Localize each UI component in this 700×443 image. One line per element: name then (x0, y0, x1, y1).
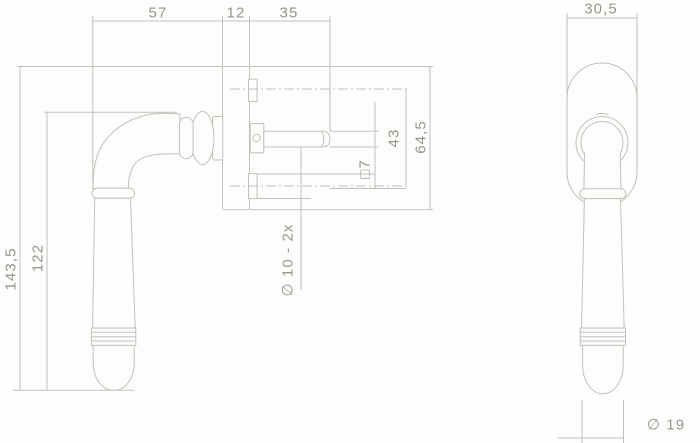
dim-label-122: 122 (31, 244, 46, 272)
dim-label-30-5: 30,5 (584, 2, 618, 17)
dim-label-143-5: 143,5 (4, 247, 19, 290)
dim-label-square7: □7 (358, 159, 373, 179)
dim-label-35: 35 (280, 6, 299, 21)
grip-body-side (93, 198, 136, 328)
dim-label-64-5: 64,5 (414, 120, 429, 154)
spindle-bar (264, 131, 330, 147)
rose-side (223, 67, 250, 210)
grip-body-front (582, 199, 625, 328)
dim-label-19: ∅ 19 (647, 418, 685, 433)
handle-arm-side (93, 113, 180, 188)
screw-boss-top (249, 79, 258, 101)
window-handle-technical-drawing: 57 12 35 30,5 143,5 122 43 64,5 □7 ∅ 10 … (0, 0, 700, 443)
dim-label-57: 57 (149, 6, 168, 21)
dim-label-12: 12 (227, 6, 246, 21)
neck-tube-mask (585, 150, 620, 190)
neck-ring-side (180, 117, 194, 158)
neck-top-arc (596, 113, 609, 115)
grip-collar-front (580, 189, 626, 199)
grip-collar-side (92, 188, 135, 198)
dim-label-43: 43 (387, 129, 402, 148)
dim-label-holes: ∅ 10 - 2x (281, 224, 296, 297)
drawing-canvas (0, 0, 700, 443)
neck-bulb-side (191, 112, 214, 165)
front-view (567, 63, 637, 394)
grip-cap-front (583, 345, 624, 393)
spindle-plate (250, 124, 264, 153)
grip-cap-side (93, 345, 134, 390)
